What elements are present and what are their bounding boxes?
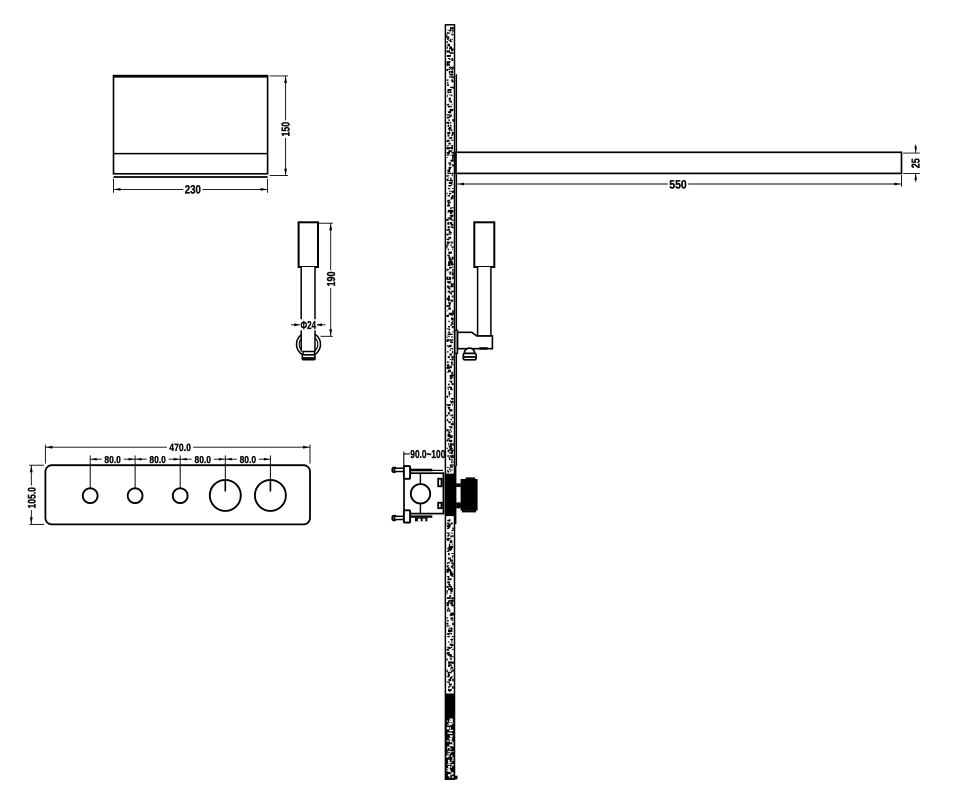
svg-text:150: 150 — [281, 122, 293, 137]
svg-text:80.0: 80.0 — [195, 455, 212, 466]
svg-text:80.0: 80.0 — [149, 455, 166, 466]
svg-text:550: 550 — [669, 178, 687, 192]
svg-text:80.0: 80.0 — [240, 455, 257, 466]
svg-text:80.0: 80.0 — [104, 455, 121, 466]
svg-text:190: 190 — [326, 272, 338, 287]
svg-text:470.0: 470.0 — [169, 442, 191, 454]
svg-text:230: 230 — [185, 183, 201, 197]
svg-text:105.0: 105.0 — [26, 487, 38, 509]
svg-text:25: 25 — [911, 158, 923, 168]
svg-text:Φ24: Φ24 — [301, 320, 317, 332]
